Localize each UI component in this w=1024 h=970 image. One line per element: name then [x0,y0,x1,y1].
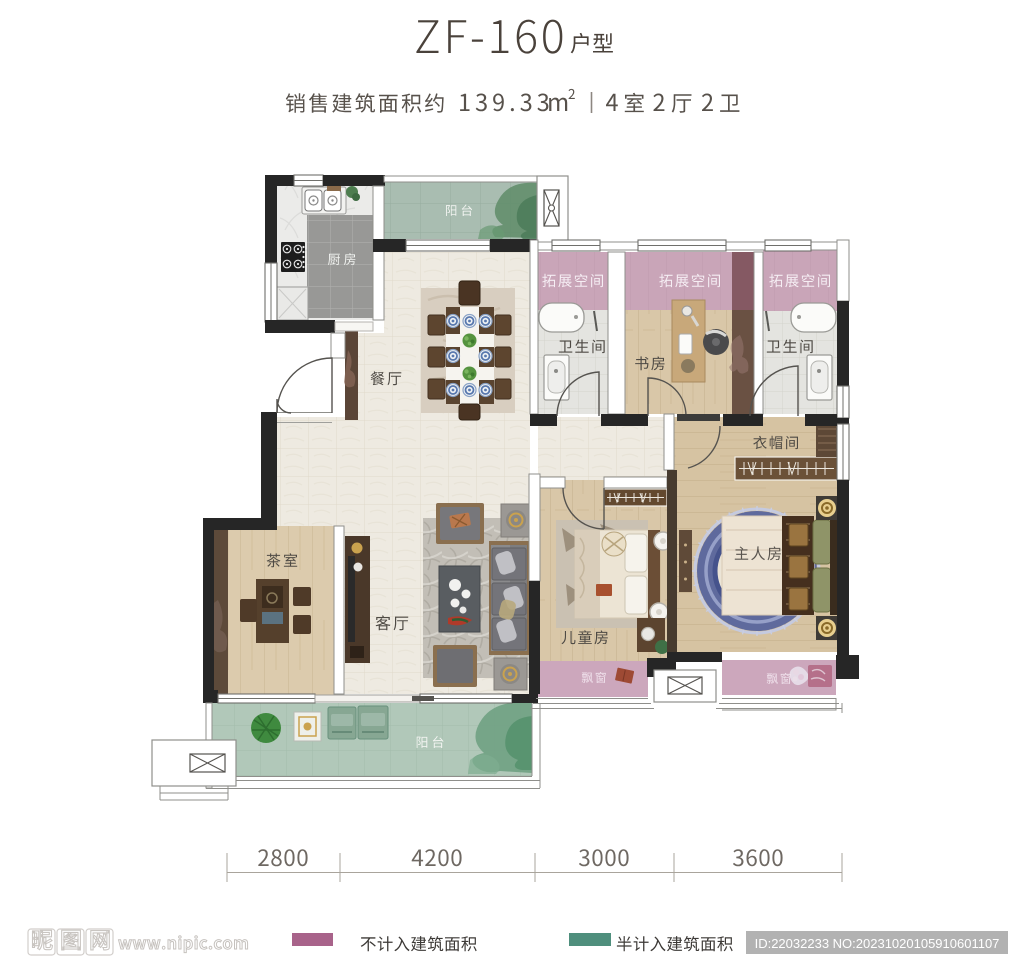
svg-text:ID:22032233 NO:202310201059106: ID:22032233 NO:20231020105910601107 [755,936,1000,951]
